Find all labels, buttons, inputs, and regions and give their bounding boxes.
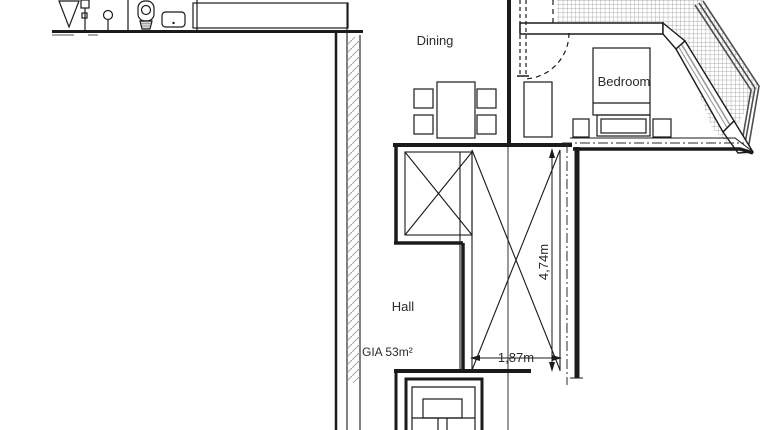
dining-table-icon xyxy=(437,82,475,138)
nightstand-icon xyxy=(573,119,589,137)
exterior-wall-left-hatch xyxy=(348,37,360,383)
wardrobe-icon xyxy=(524,82,552,137)
hall-label: Hall xyxy=(392,299,415,314)
dining-room-label: Dining xyxy=(417,33,454,48)
dining-chair-icon xyxy=(414,115,433,134)
dimension-width-label: 1,87m xyxy=(498,350,534,365)
dimension-height-label: 4,74m xyxy=(536,244,551,280)
bathroom-fixtures xyxy=(59,0,197,31)
sink-icon xyxy=(162,12,185,27)
dining-chair-icon xyxy=(477,115,496,134)
floor-plan: 4,74m 1,87m Dining Bedroom Hall GIA 53m² xyxy=(0,0,770,430)
towel-post-icon xyxy=(104,11,113,32)
wall-pier xyxy=(81,0,89,8)
bedroom-label: Bedroom xyxy=(598,74,651,89)
bed-pillow xyxy=(601,119,646,133)
gia-area-label: GIA 53m² xyxy=(362,345,413,359)
nightstand-icon xyxy=(653,119,671,137)
dim-arrow-up xyxy=(549,148,555,158)
dimension-vertical: 4,74m xyxy=(536,148,555,372)
floor-plan-drawing: 4,74m 1,87m Dining Bedroom Hall GIA 53m² xyxy=(0,0,770,430)
dining-furniture xyxy=(414,82,496,138)
toilet-icon xyxy=(138,1,154,29)
bedroom-north-wall xyxy=(520,23,663,34)
dimension-horizontal: 1,87m xyxy=(470,350,562,365)
bedroom-furniture xyxy=(524,48,671,137)
dining-chair-icon xyxy=(477,89,496,108)
bedroom-south-wall xyxy=(573,149,753,153)
kitchen-counter xyxy=(193,3,348,28)
dining-chair-icon xyxy=(414,89,433,108)
walls xyxy=(52,0,509,430)
dim-arrow-down xyxy=(549,362,555,372)
staircase-icon xyxy=(406,379,482,430)
shower-screen-icon xyxy=(59,1,79,27)
